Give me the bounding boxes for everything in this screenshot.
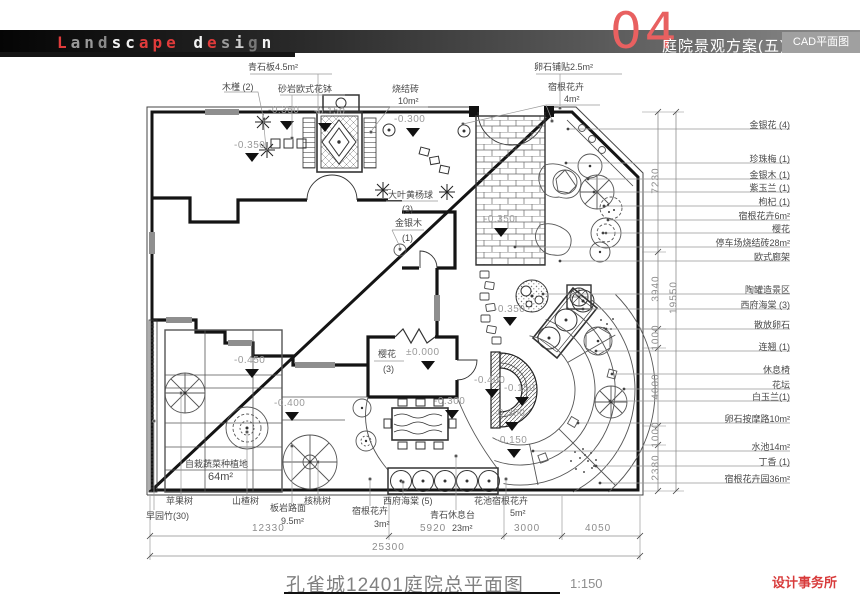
area-label: 3m² <box>374 519 390 529</box>
studio-name: 设计事务所 <box>772 572 837 591</box>
bamboo-hedge <box>149 320 157 492</box>
elevation-value: -0.350 <box>484 214 515 225</box>
logo-letter: n <box>84 33 98 52</box>
plant-label: 西府海棠 (5) <box>383 496 433 506</box>
legend-label: 陶罐造景区 <box>640 283 790 296</box>
plant-label: 山楂树 <box>232 496 259 506</box>
site-boundary <box>147 106 643 495</box>
plant-label: 花池宿根花卉 <box>474 496 528 506</box>
legend-label: 宿根花卉园36m² <box>640 472 790 485</box>
bench <box>568 417 579 428</box>
legend-label: 枸杞 (1) <box>640 195 790 208</box>
count-label: (3) <box>383 364 394 374</box>
legend-label: 西府海棠 (3) <box>640 298 790 311</box>
dimension-total: 25300 <box>372 542 405 553</box>
plant-label: 核桃树 <box>304 496 331 506</box>
pearl-bush <box>553 170 577 194</box>
logo-letter: a <box>71 33 85 52</box>
logo-letter: c <box>125 33 139 52</box>
elevation-value: -0.350 <box>234 140 265 151</box>
logo-letter: d <box>98 33 112 52</box>
dimension-value: 2380 <box>651 446 662 490</box>
count-label: (3) <box>402 204 413 214</box>
logo-letter: a <box>139 33 153 52</box>
logo-letter: s <box>221 33 235 52</box>
dimension-value: 5920 <box>420 523 446 534</box>
area-label: 4m² <box>564 94 580 104</box>
legend-label: 欧式廊架 <box>640 250 790 263</box>
logo-letter: L <box>57 33 71 52</box>
plant-label: 樱花 <box>378 349 396 359</box>
walnut-tree <box>283 435 337 489</box>
legend-label: 樱花 <box>640 222 790 235</box>
dimension-value: 12330 <box>252 523 285 534</box>
dimension-value: 4000 <box>651 365 662 409</box>
shrub <box>590 242 610 262</box>
plant-label: 宿根花卉 <box>352 506 388 516</box>
elevation-value: -0.300 <box>394 114 425 125</box>
logo-letter: g <box>248 33 262 52</box>
elevation-value: -0.300 <box>434 396 465 407</box>
drawing-scale: 1:150 <box>570 576 603 591</box>
area-label: 64m² <box>208 472 233 482</box>
legend-label: 卵石按摩路10m² <box>640 412 790 425</box>
zone-label: 自栽蔬菜种植地 <box>185 459 248 469</box>
logo-letter: e <box>207 33 221 52</box>
logo-letter: s <box>112 33 126 52</box>
shrub <box>353 399 371 417</box>
dimension-value: 4050 <box>585 523 611 534</box>
material-label: 青石休息台 <box>430 510 475 520</box>
legend-label: 休息椅 <box>640 363 790 376</box>
elevation-value: -0.150 <box>314 106 345 117</box>
material-label: 板岩路面 <box>270 503 306 513</box>
legend-label: 金银花 (4) <box>640 118 790 131</box>
elevation-value: -0.350 <box>494 304 525 315</box>
material-label: 卵石铺贴2.5m² <box>534 62 593 72</box>
legend-label: 连翘 (1) <box>640 340 790 353</box>
plant-label: 宿根花卉 <box>548 82 584 92</box>
legend-label: 金银木 (1) <box>640 168 790 181</box>
dimension-value: 7230 <box>651 159 662 203</box>
page: Landscape design 04 庭院景观方案(五) CAD平面图 木槿 … <box>0 0 860 608</box>
logo-letter: p <box>152 33 166 52</box>
dimension-value: 3000 <box>514 523 540 534</box>
elevation-value: -0.150 <box>504 383 535 394</box>
plant-label: 苹果树 <box>166 496 193 506</box>
dimension-total: 19550 <box>669 276 680 320</box>
plant-label: 大叶黄杨球 <box>388 190 433 200</box>
elevation-value: -0.300 <box>494 408 525 419</box>
plant-label: 木槿 (2) <box>222 82 254 92</box>
parking-paving <box>476 116 545 265</box>
title-underline <box>284 592 560 594</box>
plant-label: 早园竹(30) <box>146 511 189 521</box>
area-label: 23m² <box>452 523 473 533</box>
area-label: 10m² <box>398 96 419 106</box>
legend-label: 水池14m² <box>640 440 790 453</box>
legend-label: 停车场烧结砖28m² <box>640 236 790 249</box>
legend-label: 珍珠梅 (1) <box>640 152 790 165</box>
elevation-value: ±0.000 <box>406 347 440 358</box>
material-label: 烧结砖 <box>392 84 419 94</box>
legend-label: 丁香 (1) <box>640 455 790 468</box>
logo-letter: d <box>193 33 207 52</box>
header-strip <box>0 52 295 57</box>
count-label: (1) <box>402 233 413 243</box>
material-label: 青石板4.5m² <box>248 62 298 72</box>
apple-tree <box>165 373 205 413</box>
elevation-value: -0.400 <box>474 375 505 386</box>
legend-label: 宿根花卉6m² <box>640 209 790 222</box>
legend-label: 散放卵石 <box>640 318 790 331</box>
logo-letter: e <box>166 33 180 52</box>
logo-letter: n <box>262 33 276 52</box>
sheet-subtitle-badge: CAD平面图 <box>782 32 860 53</box>
elevation-value: -0.350 <box>268 105 299 116</box>
dimension-value: 1000 <box>651 316 662 360</box>
legend-label: 紫玉兰 (1) <box>640 181 790 194</box>
elevation-value: -0.450 <box>234 355 265 366</box>
logo-letter <box>180 33 194 52</box>
sheet-title: 庭院景观方案(五) <box>662 35 786 56</box>
shrub <box>356 431 376 451</box>
logo-letter: i <box>234 33 248 52</box>
logo-text: Landscape design <box>57 33 275 52</box>
material-label: 砂岩欧式花钵 <box>278 84 332 94</box>
legend-label: 白玉兰(1) <box>640 390 790 403</box>
honeysuckle-tree <box>578 154 602 178</box>
dimension-value: 3940 <box>651 267 662 311</box>
plant-label: 金银木 <box>395 218 422 228</box>
trees <box>165 114 627 489</box>
elevation-value: -0.150 <box>496 435 527 446</box>
elevation-value: -0.400 <box>274 398 305 409</box>
area-label: 5m² <box>510 508 526 518</box>
white-magnolia-tree <box>595 386 627 418</box>
